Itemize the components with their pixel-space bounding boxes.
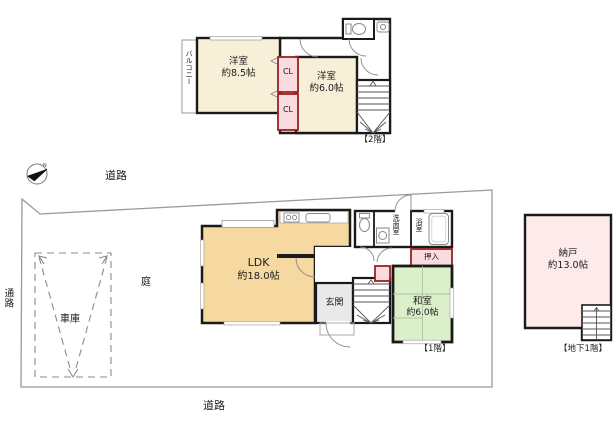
basement-label: 【地下1階】 <box>552 344 614 355</box>
kitchen-counter <box>280 212 348 224</box>
stairs-1f <box>353 278 390 323</box>
floor-plan-canvas <box>0 0 614 425</box>
sink-icon <box>306 214 330 223</box>
window-ldk-left2 <box>200 283 204 309</box>
bedroom2-label: 洋室約6.0帖 <box>296 71 357 96</box>
toilet-icon-2f <box>346 24 366 35</box>
washitsu-label: 和室約6.0帖 <box>393 296 452 320</box>
closet1-label: CL <box>278 67 298 77</box>
toilet-icon-1f <box>360 214 370 232</box>
window-bath-top <box>424 209 444 213</box>
garden-label: 庭 <box>136 276 156 289</box>
closet2-label: CL <box>278 105 298 115</box>
back-door-gap <box>395 209 410 213</box>
window-ldk-bottom <box>224 321 280 325</box>
floor-plan-page: 道路 道路 通路 庭 車庫 N バルコニー 洋室約8.5帖 洋室約6.0帖 CL… <box>0 0 614 425</box>
garage-label: 車庫 <box>56 313 84 326</box>
washbasin-icon-2f <box>377 22 389 32</box>
bathtub-icon <box>429 214 449 245</box>
bay-window <box>222 221 274 228</box>
road-label-bottom: 道路 <box>194 399 234 413</box>
floor2-label: 【2階】 <box>355 135 395 146</box>
bathroom-label: 浴室 <box>414 218 423 232</box>
oshiire-label: 押入 <box>411 252 452 262</box>
hall-closet-box <box>375 266 390 281</box>
road-label-top: 道路 <box>96 169 136 183</box>
back-door-arc <box>395 195 411 211</box>
ldk-label: LDK約18.0帖 <box>202 256 315 283</box>
compass-n-label: N <box>43 163 47 170</box>
storage-label: 納戸約13.0帖 <box>525 248 611 273</box>
washroom-label: 洗面室 <box>391 214 400 235</box>
bedroom1-label: 洋室約8.5帖 <box>197 56 280 81</box>
passage-label: 通路 <box>1 288 13 308</box>
window-bedroom1-top <box>210 36 262 40</box>
floor1-label: 【1階】 <box>415 344 455 355</box>
washing-machine-icon <box>377 228 390 243</box>
stairs-2f <box>357 80 390 133</box>
stairs-basement <box>582 305 611 340</box>
balcony-label: バルコニー <box>184 50 193 85</box>
entrance-label: 玄関 <box>316 298 353 310</box>
